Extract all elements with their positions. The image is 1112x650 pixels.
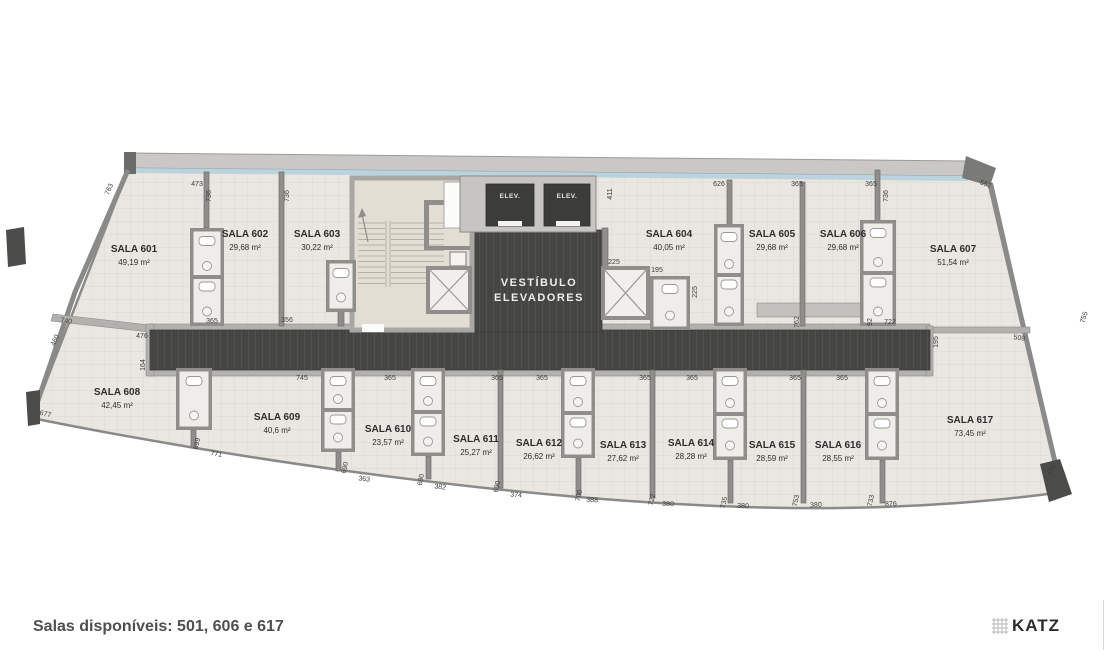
sink-fixture (878, 441, 887, 450)
room-label-606: SALA 606 (820, 229, 867, 240)
dimension-label: 356 (281, 317, 293, 324)
vestibule-label-line1: VESTÍBULO (501, 276, 577, 289)
room-label-616: SALA 616 (815, 440, 862, 451)
toilet-fixture (722, 377, 738, 386)
dimension-label: 365 (206, 318, 218, 325)
brand-text: KATZ (1012, 616, 1060, 636)
dimension-label: 755 (1079, 311, 1089, 324)
sink-fixture (337, 293, 346, 302)
dimension-label: 365 (384, 375, 396, 382)
toilet-fixture (333, 269, 349, 278)
dimension-label: 164 (140, 359, 147, 371)
room-area-606: 29,68 m² (827, 243, 859, 252)
room-label-603: SALA 603 (294, 229, 341, 240)
dimension-label: 740 (60, 317, 73, 325)
dimension-label: 762 (794, 316, 801, 328)
dimension-label: 745 (296, 375, 308, 382)
sink-fixture (725, 307, 734, 316)
sink-fixture (424, 397, 433, 406)
sink-fixture (726, 441, 735, 450)
toilet-fixture (662, 285, 678, 294)
dimension-label: 736 (206, 190, 213, 202)
dimension-label: 225 (692, 286, 699, 298)
dimension-label: 690 (493, 480, 502, 493)
sink-fixture (574, 439, 583, 448)
toilet-fixture (722, 419, 738, 428)
toilet-fixture (874, 419, 890, 428)
room-area-603: 30,22 m² (301, 243, 333, 252)
room-area-609: 40,6 m² (263, 426, 290, 435)
room-label-602: SALA 602 (222, 229, 269, 240)
dimension-label: 365 (491, 375, 503, 382)
room-label-614: SALA 614 (668, 438, 715, 449)
dimension-label: 626 (713, 181, 725, 188)
dimension-label: 380 (662, 501, 674, 509)
dimension-label: 771 (210, 450, 223, 459)
dimension-label: 736 (284, 190, 291, 202)
elevator-2-label: ELEV. (557, 193, 578, 200)
room-area-616: 28,55 m² (822, 454, 854, 463)
room-area-602: 29,68 m² (229, 243, 261, 252)
dimension-label: 363 (358, 475, 370, 483)
room-label-604: SALA 604 (646, 229, 693, 240)
elevator-1-label: ELEV. (500, 193, 521, 200)
room-area-613: 27,62 m² (607, 454, 639, 463)
room-area-610: 23,57 m² (372, 438, 404, 447)
dimension-label: 195 (651, 267, 663, 274)
dimension-label: 876 (885, 501, 897, 509)
room-label-613: SALA 613 (600, 440, 647, 451)
room-label-605: SALA 605 (749, 229, 796, 240)
room-area-605: 29,68 m² (756, 243, 788, 252)
sink-fixture (725, 260, 734, 269)
room-area-601: 49,19 m² (118, 258, 150, 267)
sink-fixture (874, 258, 883, 267)
dimension-label: 365 (536, 375, 548, 382)
dimension-label: 365 (865, 181, 877, 188)
room-label-611: SALA 611 (453, 434, 499, 445)
sink-fixture (574, 398, 583, 407)
toilet-fixture (570, 377, 586, 386)
floor-plan-drawing: ELEV. ELEV. VESTÍBULO ELEVADORES SALA 60… (0, 0, 1112, 650)
toilet-fixture (199, 237, 215, 246)
dimension-label: 195 (933, 336, 940, 348)
availability-note: Salas disponíveis: 501, 606 e 617 (33, 618, 284, 636)
dimension-label: 365 (836, 375, 848, 382)
dimension-label: 365 (686, 375, 698, 382)
toilet-fixture (721, 280, 737, 289)
toilet-fixture (420, 377, 436, 386)
floor-plan-page: ELEV. ELEV. VESTÍBULO ELEVADORES SALA 60… (0, 0, 1112, 650)
sink-fixture (334, 433, 343, 442)
dimension-label: 736 (883, 190, 890, 202)
corridor (150, 330, 930, 370)
page-divider (1103, 600, 1104, 650)
dimension-label: 92 (867, 318, 874, 326)
dimension-label: 763 (104, 183, 115, 197)
room-area-612: 26,62 m² (523, 452, 555, 461)
toilet-fixture (420, 417, 436, 426)
room-area-614: 28,28 m² (675, 452, 707, 461)
dimension-label: 690 (417, 473, 426, 486)
dimension-label: 380 (737, 503, 749, 510)
elevator-block: ELEV. ELEV. (460, 176, 596, 232)
toilet-fixture (870, 229, 886, 238)
vestibule-label-line2: ELEVADORES (494, 292, 584, 304)
elevator-shaft-1 (486, 184, 534, 226)
dimension-label: 388 (586, 497, 598, 505)
toilet-fixture (570, 418, 586, 427)
sink-fixture (334, 395, 343, 404)
dimension-label: 700 (575, 489, 584, 502)
dimension-label: 722 (884, 319, 896, 326)
room-label-607: SALA 607 (930, 244, 977, 255)
room-label-601: SALA 601 (111, 244, 158, 255)
toilet-fixture (330, 377, 346, 386)
room-label-609: SALA 609 (254, 412, 301, 423)
katz-grid-icon (992, 618, 1008, 634)
room-label-612: SALA 612 (516, 438, 563, 449)
dimension-label: 382 (434, 483, 446, 491)
dimension-label: 374 (510, 492, 522, 500)
sink-fixture (874, 307, 883, 316)
sink-fixture (203, 307, 212, 316)
room-label-615: SALA 615 (749, 440, 796, 451)
sink-fixture (726, 399, 735, 408)
dimension-label: 380 (810, 502, 822, 509)
sink-fixture (424, 437, 433, 446)
elevator-shaft-2 (544, 184, 590, 226)
room-area-608: 42,45 m² (101, 401, 133, 410)
toilet-fixture (721, 233, 737, 242)
sink-fixture (203, 262, 212, 271)
room-area-615: 28,59 m² (756, 454, 788, 463)
sink-fixture (878, 399, 887, 408)
room-area-617: 73,45 m² (954, 429, 986, 438)
dimension-label: 476 (136, 333, 148, 340)
dimension-label: 365 (639, 375, 651, 382)
room-area-607: 51,54 m² (937, 258, 969, 267)
room-area-611: 25,27 m² (460, 448, 492, 457)
dimension-label: 365 (791, 181, 803, 188)
toilet-fixture (186, 377, 202, 386)
room-label-617: SALA 617 (947, 415, 994, 426)
sink-fixture (666, 311, 675, 320)
sink-fixture (190, 411, 199, 420)
room-area-604: 40,05 m² (653, 243, 685, 252)
toilet-fixture (874, 377, 890, 386)
brand-logo: KATZ (992, 616, 1060, 636)
toilet-fixture (330, 415, 346, 424)
dimension-label: 365 (789, 375, 801, 382)
dimension-label: 411 (607, 188, 614, 199)
toilet-fixture (199, 282, 215, 291)
room-label-608: SALA 608 (94, 387, 141, 398)
room-label-610: SALA 610 (365, 424, 412, 435)
dimension-label: 473 (191, 181, 203, 188)
dimension-label: 722 (648, 493, 657, 506)
dimension-label: 225 (608, 259, 620, 266)
toilet-fixture (870, 278, 886, 287)
